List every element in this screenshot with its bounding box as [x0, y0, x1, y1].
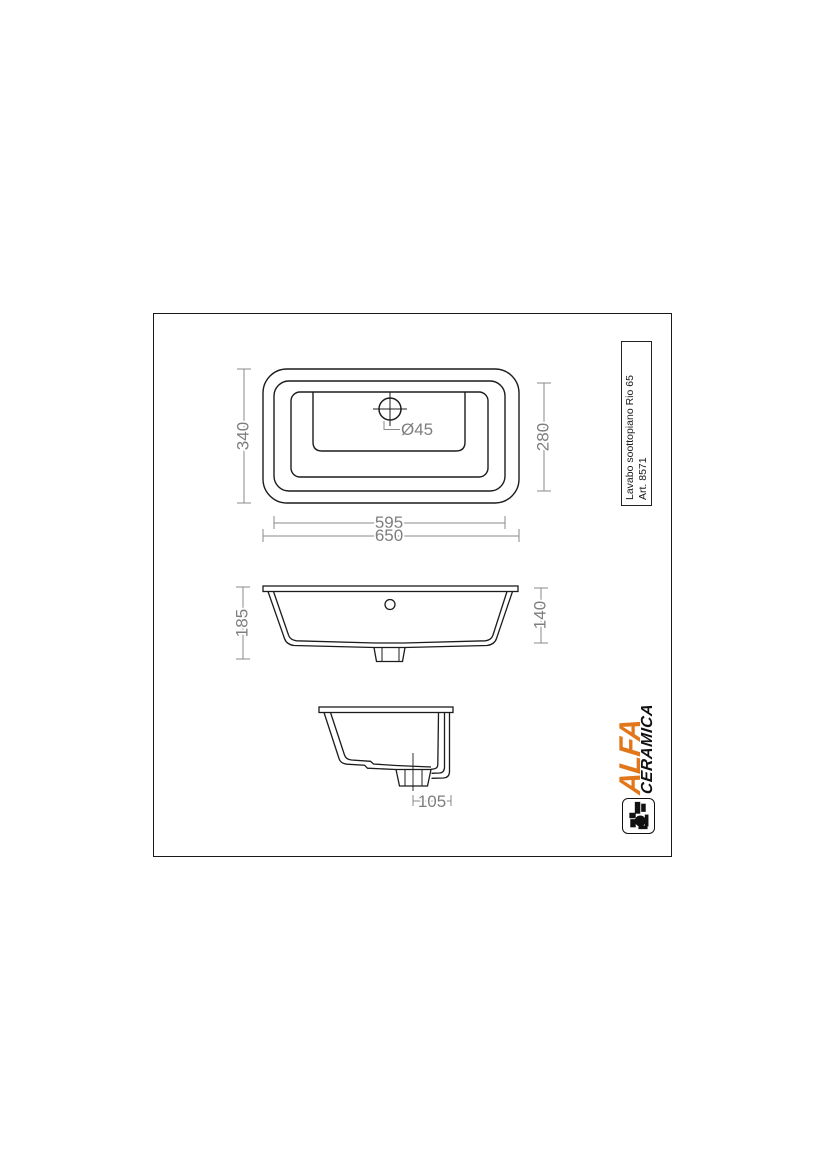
dim-plan-outer-depth: 340 [234, 422, 253, 450]
article-number: Art. 8571 [637, 342, 650, 500]
brand-mark [622, 798, 655, 834]
drawing-sheet: 340 280 595 650 Ø45 185 140 105 Lavabo s… [153, 313, 672, 857]
side-rim [319, 707, 453, 713]
product-name: Lavabo soottopiano Rio 65 [624, 342, 637, 500]
front-rim [263, 586, 518, 592]
brand-logo: ALFA CERAMICA [618, 652, 660, 794]
brand-name-secondary: CERAMICA [640, 651, 655, 795]
dimension-lines [236, 369, 551, 806]
front-view [263, 586, 518, 662]
dim-front-total-height: 185 [233, 609, 252, 637]
plan-basin-floor [313, 393, 465, 452]
dim-drain-diameter: Ø45 [401, 420, 433, 439]
technical-drawing: 340 280 595 650 Ø45 185 140 105 [154, 314, 670, 855]
dim-plan-outer-width: 650 [375, 526, 403, 545]
brand-mark-icon [623, 799, 653, 832]
plan-outer-rim [263, 369, 519, 503]
title-block-text: Lavabo soottopiano Rio 65 Art. 8571 [622, 342, 651, 505]
side-drain-fitting [396, 770, 431, 787]
plan-view [263, 369, 519, 503]
title-block: Lavabo soottopiano Rio 65 Art. 8571 [621, 341, 652, 506]
drain-leader-line [384, 421, 400, 430]
dim-side-drain-offset: 105 [418, 792, 446, 811]
overflow-hole [385, 600, 395, 610]
front-drain-fitting [374, 648, 405, 662]
dim-plan-inner-depth: 280 [534, 423, 553, 451]
dim-front-basin-depth: 140 [531, 601, 550, 629]
page: 340 280 595 650 Ø45 185 140 105 Lavabo s… [0, 0, 826, 1169]
side-view [319, 707, 453, 791]
